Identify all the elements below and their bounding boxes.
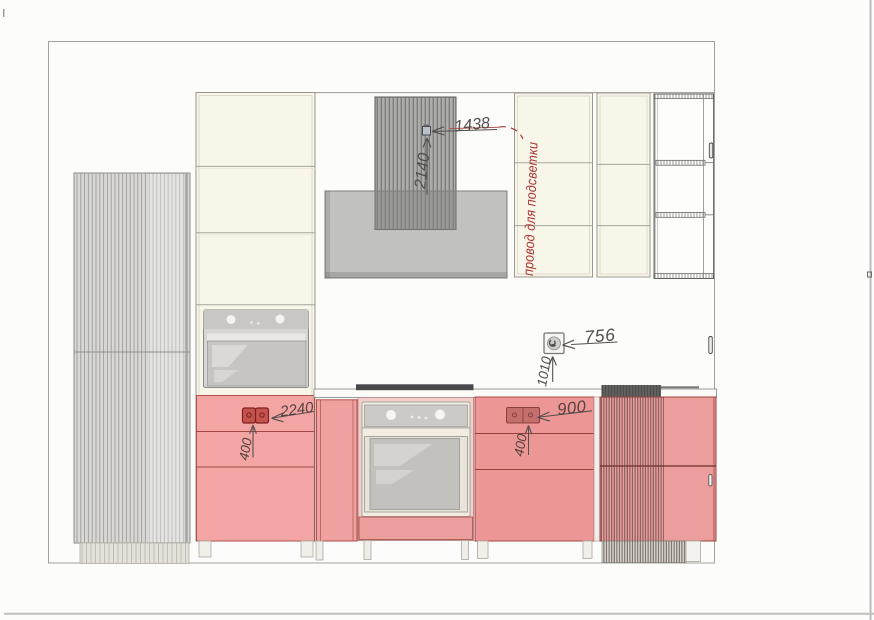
svg-text:756: 756 bbox=[584, 324, 617, 347]
svg-text:1438: 1438 bbox=[454, 115, 491, 136]
svg-text:1010: 1010 bbox=[534, 355, 554, 388]
svg-text:900: 900 bbox=[556, 398, 587, 419]
